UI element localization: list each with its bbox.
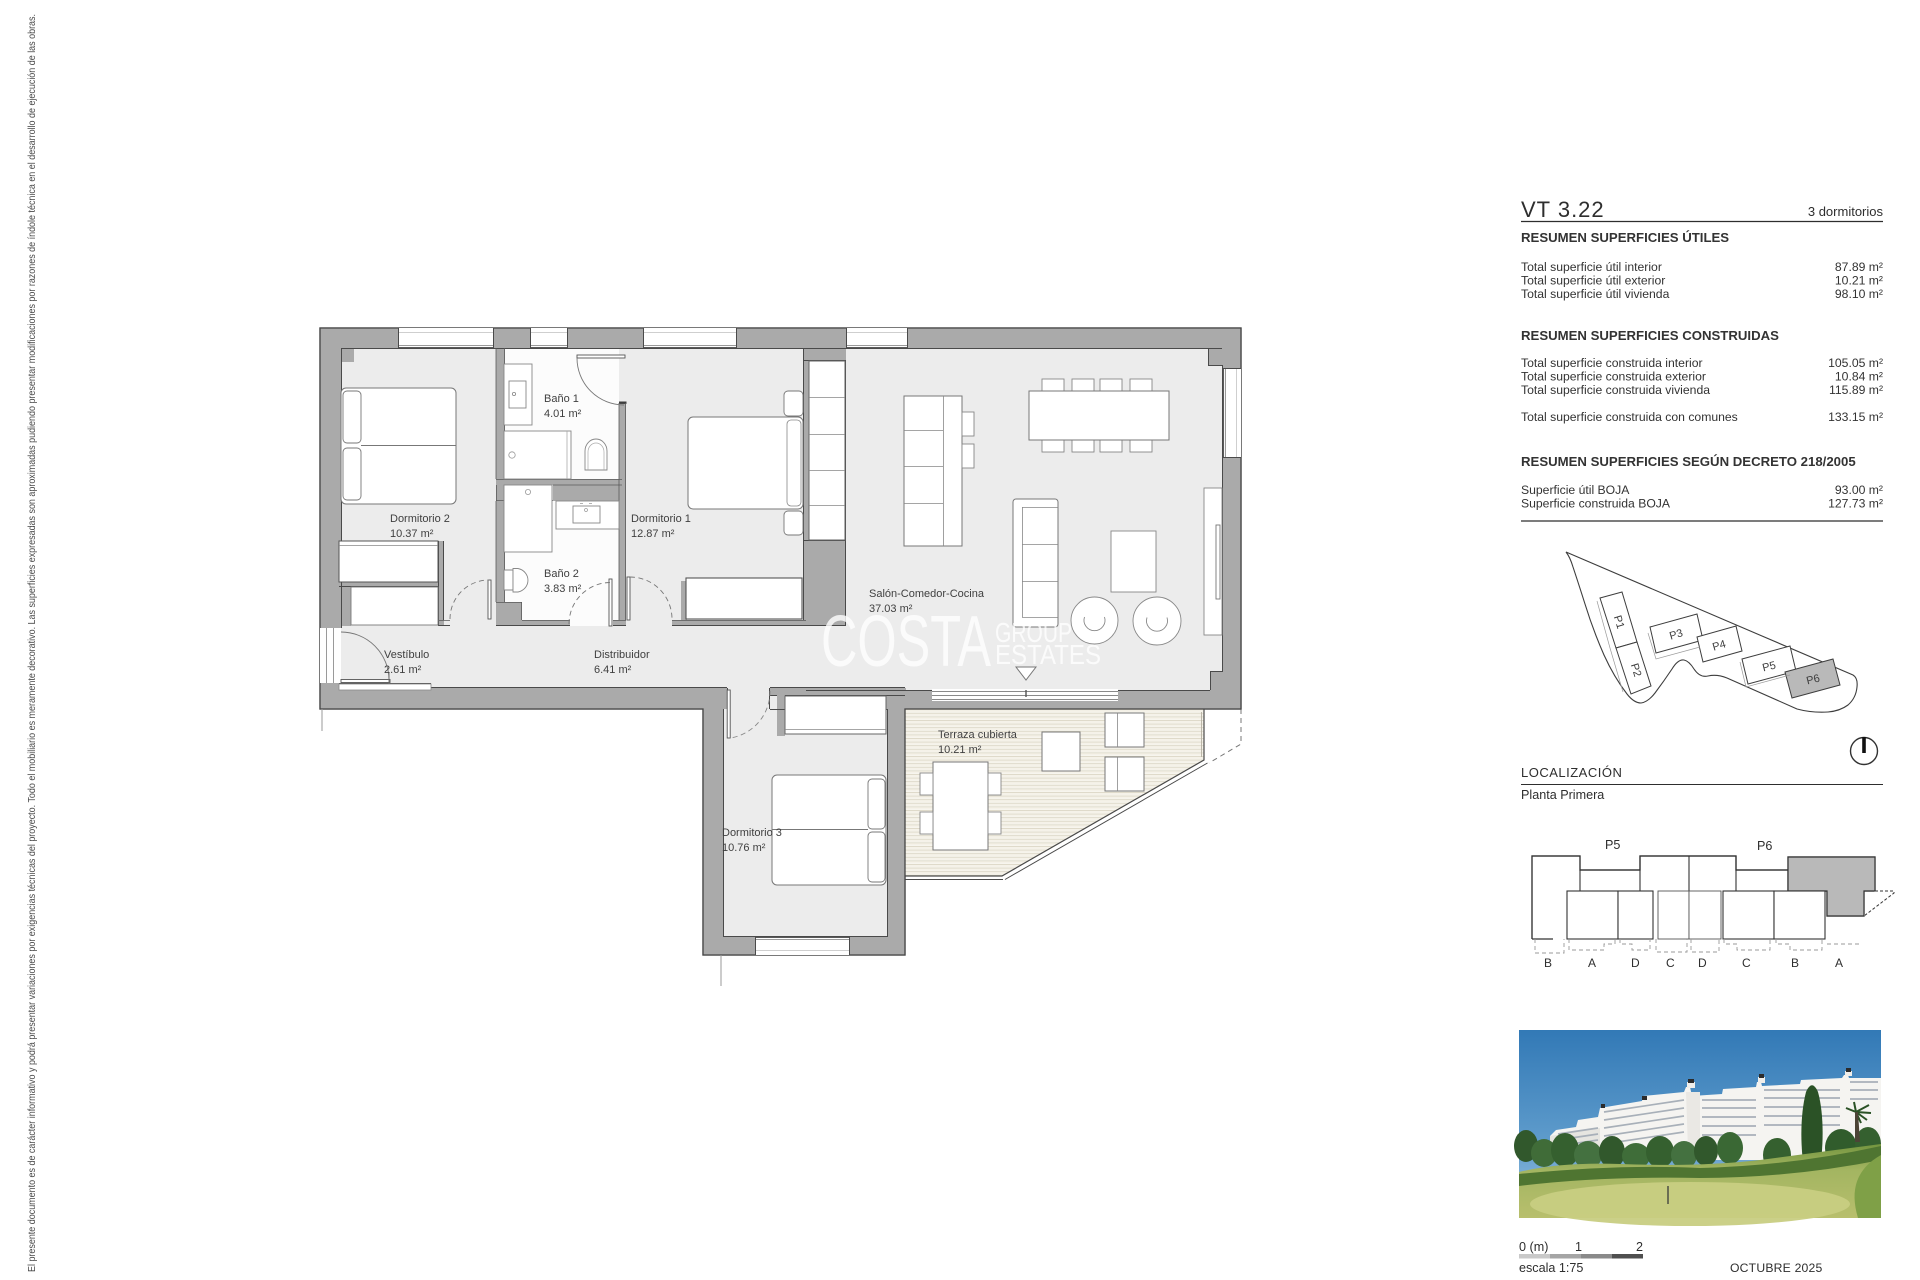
svg-text:A: A <box>1588 956 1596 970</box>
svg-text:2: 2 <box>1636 1240 1643 1254</box>
svg-text:10.76 m²: 10.76 m² <box>722 842 766 854</box>
svg-text:Total superficie construida co: Total superficie construida con comunes <box>1521 410 1738 424</box>
svg-text:133.15 m²: 133.15 m² <box>1828 410 1883 424</box>
svg-text:D: D <box>1698 956 1707 970</box>
svg-text:LOCALIZACIÓN: LOCALIZACIÓN <box>1521 765 1622 780</box>
svg-text:87.89 m²: 87.89 m² <box>1835 260 1883 274</box>
svg-text:Superficie útil BOJA: Superficie útil BOJA <box>1521 483 1630 497</box>
svg-text:RESUMEN SUPERFICIES CONSTRUIDA: RESUMEN SUPERFICIES CONSTRUIDAS <box>1521 328 1779 343</box>
svg-text:Dormitorio 2: Dormitorio 2 <box>390 513 450 525</box>
svg-text:P6: P6 <box>1757 839 1772 853</box>
svg-text:Salón-Comedor-Cocina: Salón-Comedor-Cocina <box>869 588 985 600</box>
svg-text:Dormitorio 1: Dormitorio 1 <box>631 513 691 525</box>
svg-text:127.73 m²: 127.73 m² <box>1828 496 1883 510</box>
svg-text:6.41 m²: 6.41 m² <box>594 664 632 676</box>
svg-text:Dormitorio 3: Dormitorio 3 <box>722 827 782 839</box>
svg-text:C: C <box>1666 956 1675 970</box>
svg-text:0 (m): 0 (m) <box>1519 1240 1548 1254</box>
svg-text:ESTATES: ESTATES <box>995 639 1101 670</box>
svg-text:Total superficie útil vivienda: Total superficie útil vivienda <box>1521 287 1670 301</box>
svg-text:2.61 m²: 2.61 m² <box>384 664 422 676</box>
svg-text:RESUMEN SUPERFICIES SEGÚN DECR: RESUMEN SUPERFICIES SEGÚN DECRETO 218/20… <box>1521 454 1856 469</box>
svg-text:RESUMEN SUPERFICIES ÚTILES: RESUMEN SUPERFICIES ÚTILES <box>1521 230 1729 245</box>
svg-text:98.10 m²: 98.10 m² <box>1835 287 1883 301</box>
svg-text:C: C <box>1742 956 1751 970</box>
svg-text:VT 3.22: VT 3.22 <box>1521 197 1605 222</box>
svg-text:Total superficie construida vi: Total superficie construida vivienda <box>1521 383 1710 397</box>
svg-text:Superficie construida BOJA: Superficie construida BOJA <box>1521 496 1671 510</box>
svg-text:Vestíbulo: Vestíbulo <box>384 649 429 661</box>
svg-text:12.87 m²: 12.87 m² <box>631 528 675 540</box>
svg-text:10.84 m²: 10.84 m² <box>1835 369 1883 383</box>
svg-text:3.83 m²: 3.83 m² <box>544 583 582 595</box>
svg-text:Baño 1: Baño 1 <box>544 393 579 405</box>
svg-text:10.37 m²: 10.37 m² <box>390 528 434 540</box>
svg-text:Total superficie útil exterior: Total superficie útil exterior <box>1521 273 1665 287</box>
svg-text:escala 1:75: escala 1:75 <box>1519 1261 1583 1275</box>
svg-text:Terraza cubierta: Terraza cubierta <box>938 729 1018 741</box>
svg-text:37.03 m²: 37.03 m² <box>869 603 913 615</box>
svg-text:P5: P5 <box>1605 838 1620 852</box>
svg-text:4.01 m²: 4.01 m² <box>544 408 582 420</box>
svg-text:Planta Primera: Planta Primera <box>1521 788 1604 802</box>
svg-text:3 dormitorios: 3 dormitorios <box>1808 204 1884 219</box>
svg-text:1: 1 <box>1575 1240 1582 1254</box>
svg-text:10.21 m²: 10.21 m² <box>1835 273 1883 287</box>
svg-text:D: D <box>1631 956 1640 970</box>
svg-text:Total superficie construida in: Total superficie construida interior <box>1521 356 1703 370</box>
svg-text:93.00 m²: 93.00 m² <box>1835 483 1883 497</box>
svg-text:Total superficie útil interior: Total superficie útil interior <box>1521 260 1662 274</box>
svg-text:105.05 m²: 105.05 m² <box>1828 356 1883 370</box>
svg-text:OCTUBRE 2025: OCTUBRE 2025 <box>1730 1261 1823 1275</box>
svg-text:115.89 m²: 115.89 m² <box>1829 383 1883 397</box>
svg-text:El presente documento es de ca: El presente documento es de carácter inf… <box>27 14 38 1272</box>
svg-text:B: B <box>1791 956 1799 970</box>
svg-text:Distribuidor: Distribuidor <box>594 649 650 661</box>
svg-text:Baño 2: Baño 2 <box>544 568 579 580</box>
svg-text:B: B <box>1544 956 1552 970</box>
svg-text:10.21 m²: 10.21 m² <box>938 744 982 756</box>
svg-text:A: A <box>1835 956 1843 970</box>
svg-text:Total superficie construida ex: Total superficie construida exterior <box>1521 369 1706 383</box>
